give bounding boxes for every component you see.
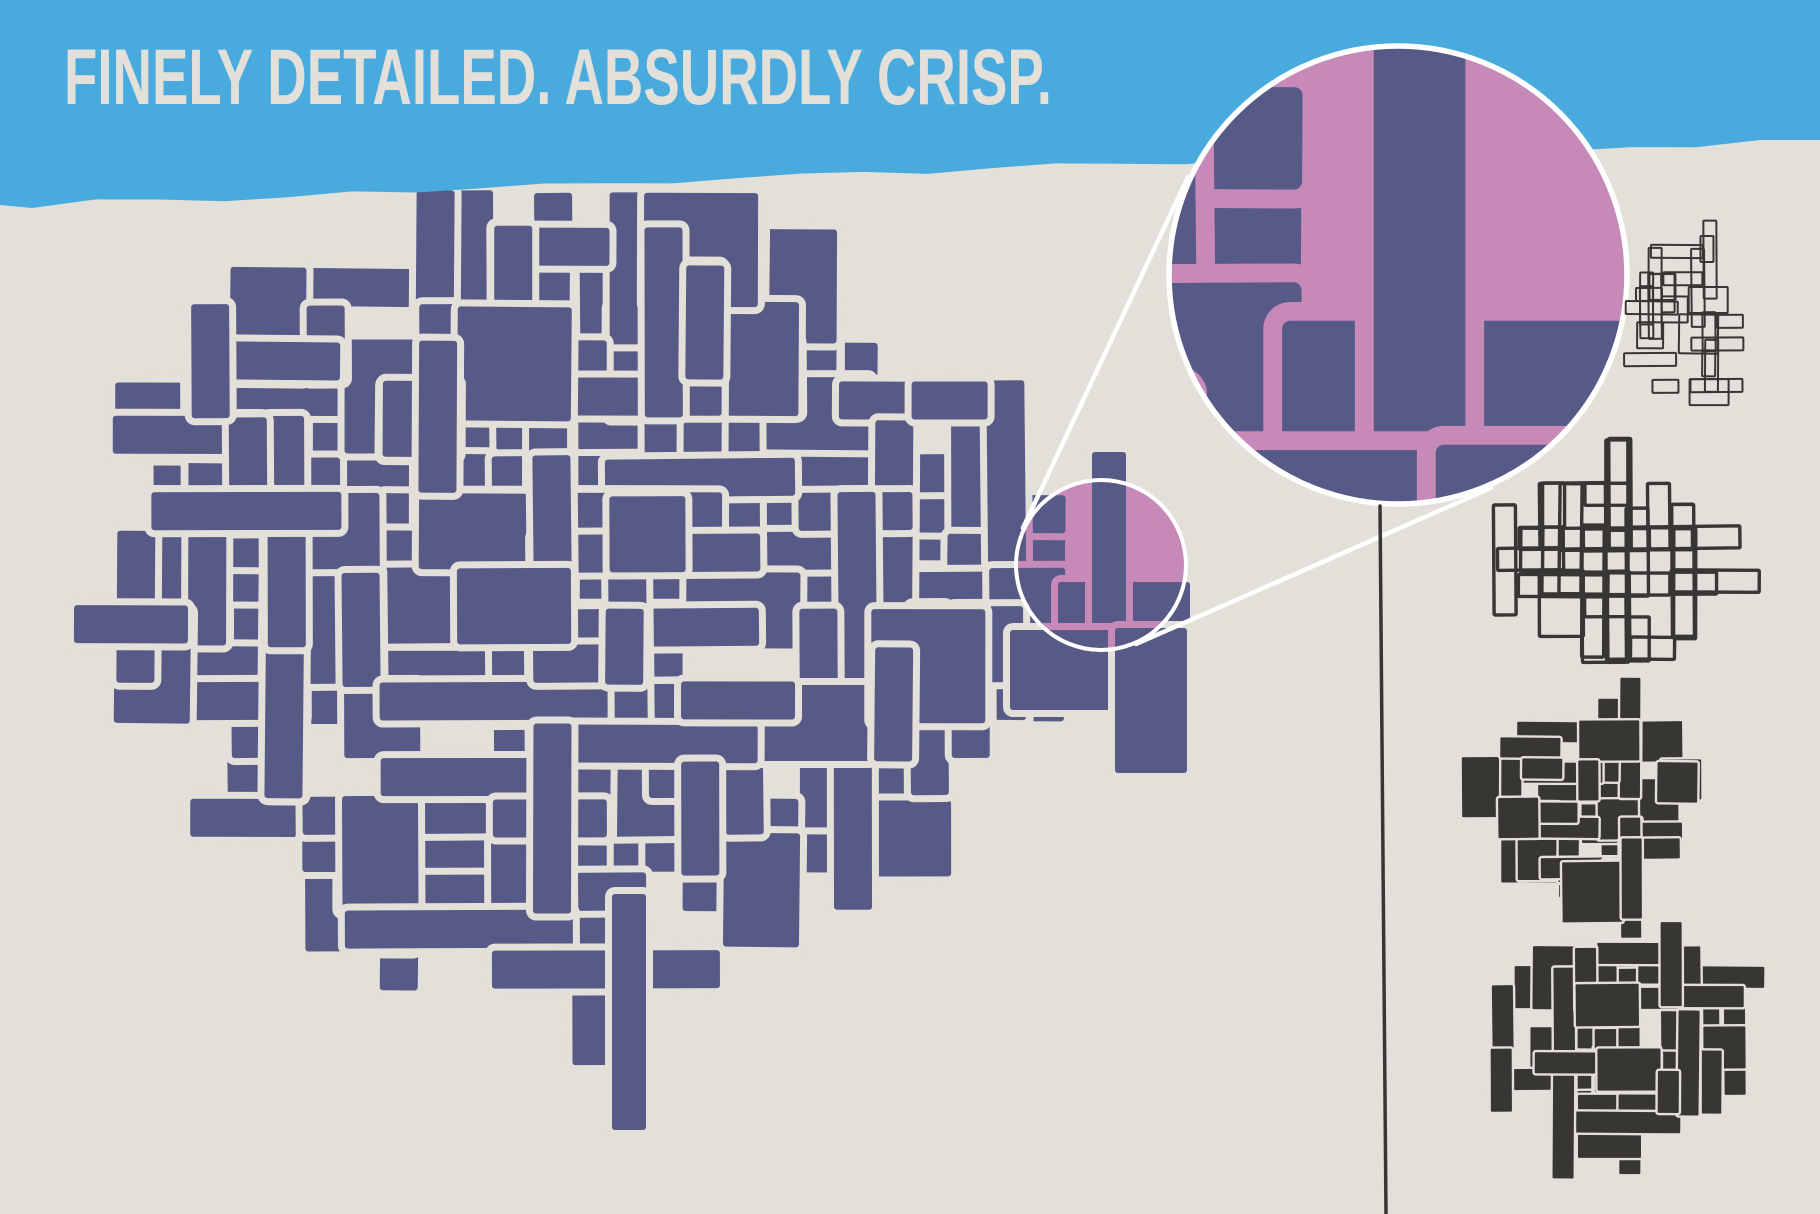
poster: FINELY DETAILED. ABSURDLY CRISP.: [0, 0, 1820, 1214]
poster-graphic: FINELY DETAILED. ABSURDLY CRISP.: [0, 0, 1820, 1214]
poster-title: FINELY DETAILED. ABSURDLY CRISP.: [64, 34, 1052, 121]
